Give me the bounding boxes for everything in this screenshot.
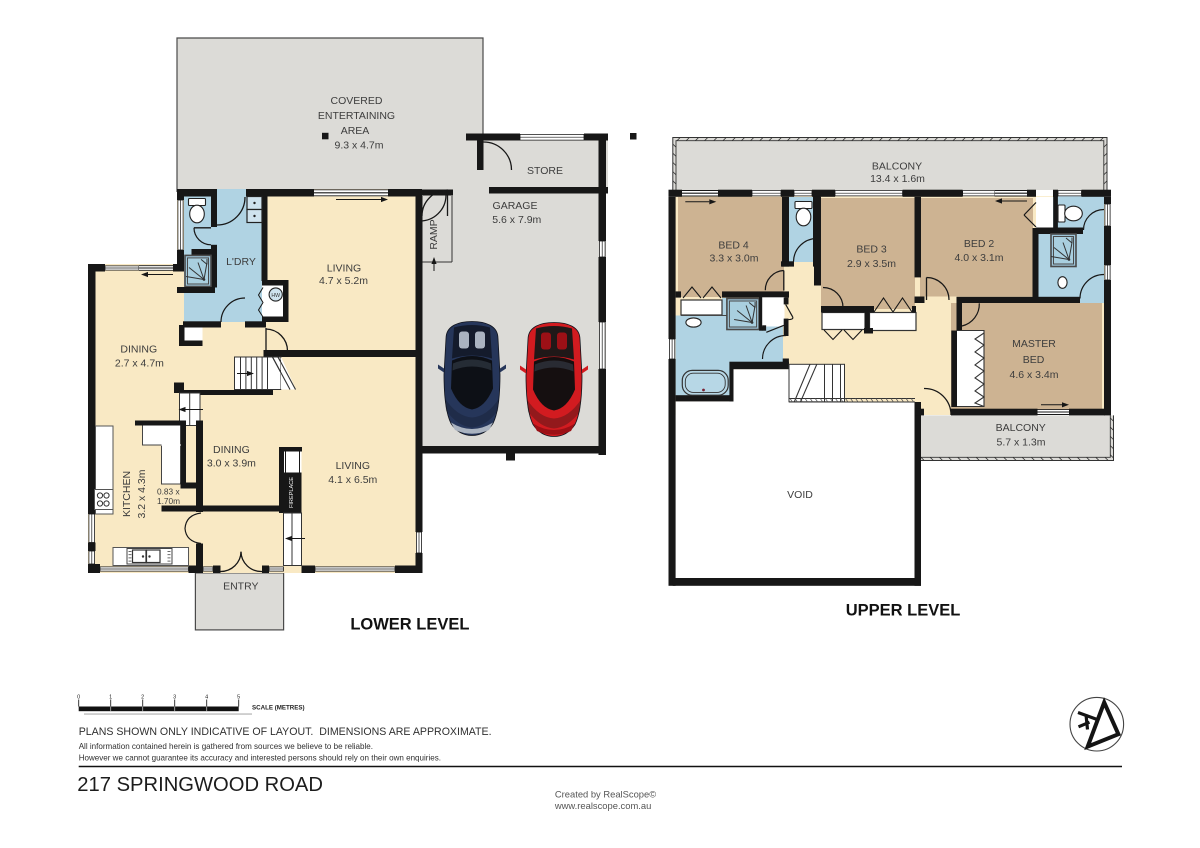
svg-text:ENTRY: ENTRY — [223, 581, 258, 593]
svg-text:However we cannot guarantee it: However we cannot guarantee its accuracy… — [79, 754, 441, 763]
svg-text:VOID: VOID — [787, 489, 813, 501]
svg-text:4.6 x 3.4m: 4.6 x 3.4m — [1009, 369, 1058, 381]
svg-text:All information contained here: All information contained herein is gath… — [79, 742, 373, 751]
svg-text:4.0 x 3.1m: 4.0 x 3.1m — [954, 252, 1003, 264]
svg-text:BED 2: BED 2 — [964, 238, 995, 250]
svg-text:COVERED: COVERED — [331, 95, 383, 107]
svg-text:2.9 x 3.5m: 2.9 x 3.5m — [847, 258, 896, 270]
svg-text:DINING: DINING — [120, 344, 157, 356]
svg-text:5.6 x 7.9m: 5.6 x 7.9m — [492, 214, 541, 226]
svg-text:Created by RealScope©: Created by RealScope© — [555, 789, 656, 800]
svg-text:3.0 x 3.9m: 3.0 x 3.9m — [207, 458, 256, 470]
svg-text:BED 4: BED 4 — [718, 240, 749, 252]
svg-text:BED: BED — [1023, 354, 1045, 366]
svg-text:4.1 x 6.5m: 4.1 x 6.5m — [328, 474, 377, 486]
svg-text:www.realscope.com.au: www.realscope.com.au — [554, 800, 651, 811]
svg-text:LIVING: LIVING — [336, 460, 370, 472]
svg-text:STORE: STORE — [527, 165, 563, 177]
svg-text:L'DRY: L'DRY — [226, 256, 256, 268]
svg-text:HW: HW — [271, 293, 280, 299]
svg-text:5.7 x 1.3m: 5.7 x 1.3m — [996, 437, 1045, 449]
svg-text:4.7 x 5.2m: 4.7 x 5.2m — [319, 275, 368, 287]
svg-text:217 SPRINGWOOD ROAD: 217 SPRINGWOOD ROAD — [77, 774, 323, 796]
svg-text:UPPER LEVEL: UPPER LEVEL — [846, 602, 961, 620]
svg-text:SCALE (METRES): SCALE (METRES) — [252, 704, 305, 711]
svg-text:BALCONY: BALCONY — [872, 161, 922, 173]
svg-text:9.3 x 4.7m: 9.3 x 4.7m — [334, 140, 383, 152]
svg-text:0.83 x: 0.83 x — [157, 487, 180, 497]
svg-text:BALCONY: BALCONY — [996, 422, 1046, 434]
svg-text:KITCHEN: KITCHEN — [121, 471, 133, 517]
svg-text:LOWER LEVEL: LOWER LEVEL — [350, 615, 469, 633]
svg-text:3.3 x 3.0m: 3.3 x 3.0m — [709, 252, 758, 264]
svg-text:LIVING: LIVING — [327, 263, 361, 275]
svg-text:FIREPLACE: FIREPLACE — [289, 477, 295, 508]
svg-text:3.2 x 4.3m: 3.2 x 4.3m — [136, 469, 148, 518]
svg-text:AREA: AREA — [341, 125, 370, 137]
svg-text:PLANS SHOWN ONLY INDICATIVE OF: PLANS SHOWN ONLY INDICATIVE OF LAYOUT. D… — [79, 726, 492, 738]
svg-text:DINING: DINING — [213, 444, 250, 456]
svg-text:1.70m: 1.70m — [157, 496, 180, 506]
svg-text:13.4 x 1.6m: 13.4 x 1.6m — [870, 173, 925, 185]
svg-text:MASTER: MASTER — [1012, 338, 1056, 350]
svg-text:BED 3: BED 3 — [856, 244, 887, 256]
svg-text:GARAGE: GARAGE — [493, 200, 538, 212]
svg-text:RAMP: RAMP — [428, 219, 440, 249]
svg-text:ENTERTAINING: ENTERTAINING — [318, 110, 395, 122]
svg-text:2.7 x 4.7m: 2.7 x 4.7m — [115, 358, 164, 370]
